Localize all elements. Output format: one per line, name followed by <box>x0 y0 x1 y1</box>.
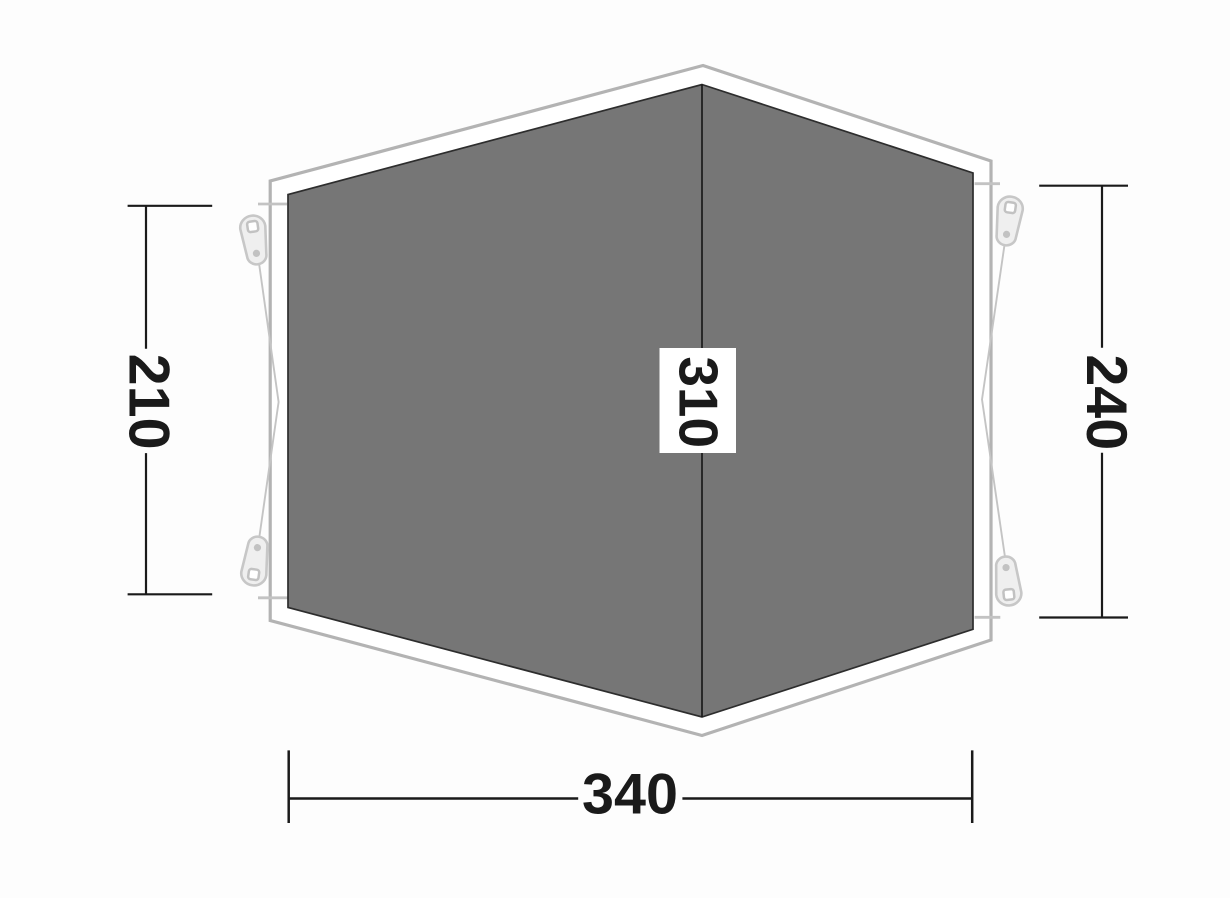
svg-text:340: 340 <box>582 763 678 827</box>
svg-text:310: 310 <box>668 356 730 448</box>
svg-text:210: 210 <box>117 354 181 450</box>
svg-text:240: 240 <box>1074 354 1138 450</box>
